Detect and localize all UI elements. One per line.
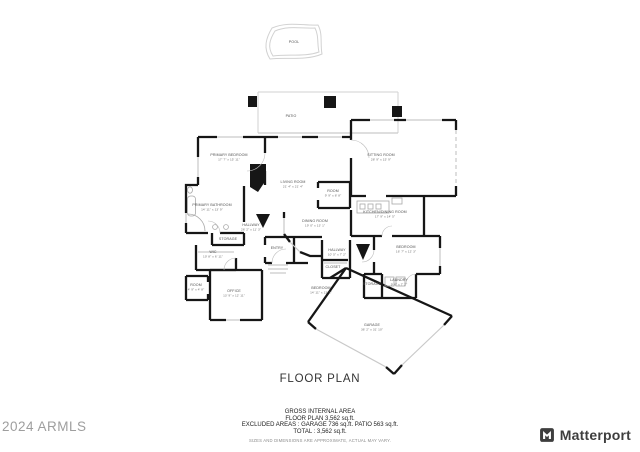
room-label-closet: CLOSET <box>326 265 342 269</box>
room-label-patio: PATIO <box>286 114 297 118</box>
room-label-storage: STORAGE <box>219 237 238 241</box>
room-label-primary-bathroom: PRIMARY BATHROOM14' 11" x 13' 9" <box>192 203 231 211</box>
armls-watermark: 2024 ARMLS <box>2 419 87 434</box>
room-label-room: ROOM4' 9" x 4' 8" <box>188 283 205 291</box>
room-label-wic: WIC10' 8" x 6' 11" <box>203 250 223 258</box>
room-label-sitting-room: SITTING ROOM28' 9" x 15' 9" <box>367 153 395 161</box>
room-label-dining-room: DINING ROOM19' 0" x 13' 1" <box>302 219 328 227</box>
room-label-office: OFFICE13' 9" x 12' 11" <box>223 289 245 297</box>
matterport-icon <box>539 427 555 443</box>
room-label-room: ROOM9' 9" x 8' 8" <box>325 189 342 197</box>
room-label-primary-bedroom: PRIMARY BEDROOM17' 7" x 15' 11" <box>210 153 247 161</box>
floor-plan-area-line: FLOOR PLAN 3,562 sq.ft. <box>0 416 640 423</box>
room-label-bedroom: BEDROOM14' 11" x 13' 1" <box>310 286 332 294</box>
room-label-pool: POOL <box>289 40 299 44</box>
room-label-kitchen-dining-room: KITCHEN/DINING ROOM17' 9" x 14' 5" <box>363 210 406 218</box>
floor-plan-title: FLOOR PLAN <box>0 373 640 385</box>
matterport-wordmark: Matterport <box>560 427 631 443</box>
room-label-garage: GARAGE36' 2" x 31' 10" <box>361 323 383 331</box>
matterport-logo: Matterport <box>539 427 631 443</box>
room-label-hallway: HALLWAY26' 2" x 11' 3" <box>241 223 261 231</box>
room-label-living-room: LIVING ROOM21' 4" x 21' 4" <box>280 180 305 188</box>
room-label-hallway: HALLWAY10' 5" x 7' 2" <box>328 248 346 256</box>
room-label-bedroom: BEDROOM16' 7" x 12' 3" <box>396 245 416 253</box>
room-label-storage: STORAGE <box>363 282 382 286</box>
gross-internal-area-line: GROSS INTERNAL AREA <box>0 409 640 416</box>
room-label-entry: ENTRY <box>271 246 284 250</box>
room-label-laundry: LAUNDRY9' 6" x 7' 2" <box>390 278 408 286</box>
